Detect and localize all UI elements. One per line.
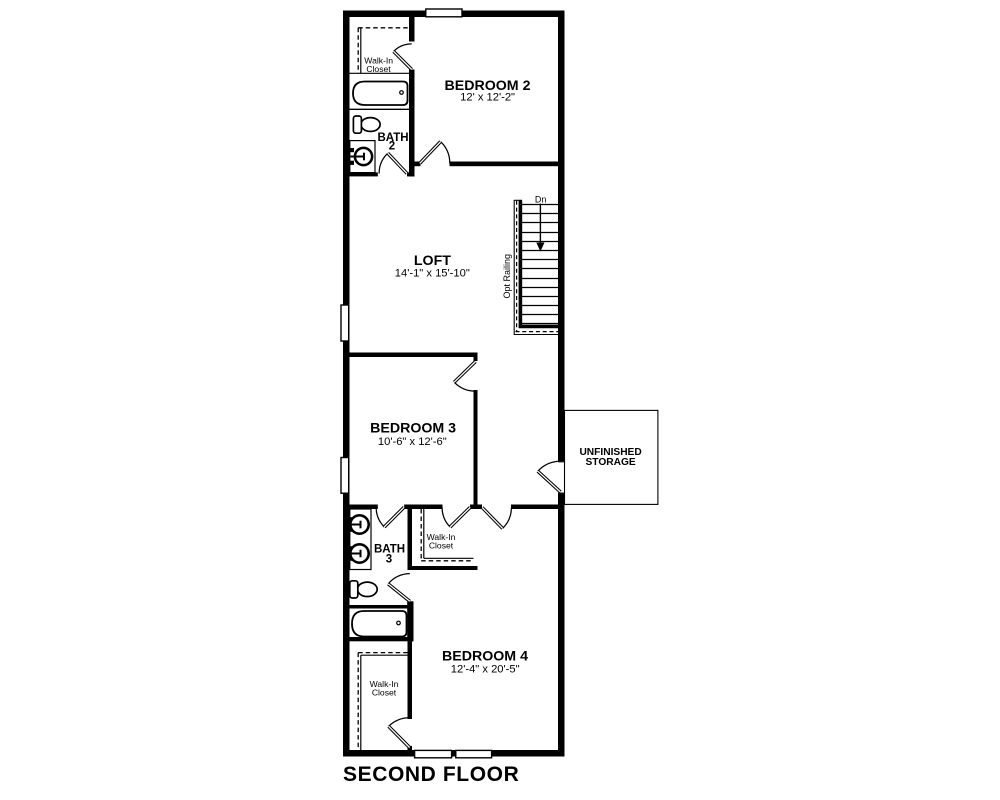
svg-text:Opt Railing: Opt Railing [502,254,512,299]
svg-text:Closet: Closet [372,688,397,698]
svg-text:SECOND FLOOR: SECOND FLOOR [343,763,519,786]
svg-text:Dn: Dn [535,194,547,204]
svg-text:12' x 12'-2": 12' x 12'-2" [460,92,515,104]
svg-text:14'-1" x 15'-10": 14'-1" x 15'-10" [395,268,470,280]
svg-text:STORAGE: STORAGE [585,457,635,468]
svg-text:BEDROOM 4: BEDROOM 4 [442,649,528,665]
svg-text:2: 2 [389,140,395,152]
svg-text:12'-4" x 20'-5": 12'-4" x 20'-5" [451,663,520,675]
svg-text:Closet: Closet [429,540,454,550]
svg-text:3: 3 [386,554,392,566]
svg-text:Closet: Closet [366,64,391,74]
svg-text:10'-6" x 12'-6": 10'-6" x 12'-6" [378,436,447,448]
svg-text:BEDROOM 3: BEDROOM 3 [370,421,456,437]
